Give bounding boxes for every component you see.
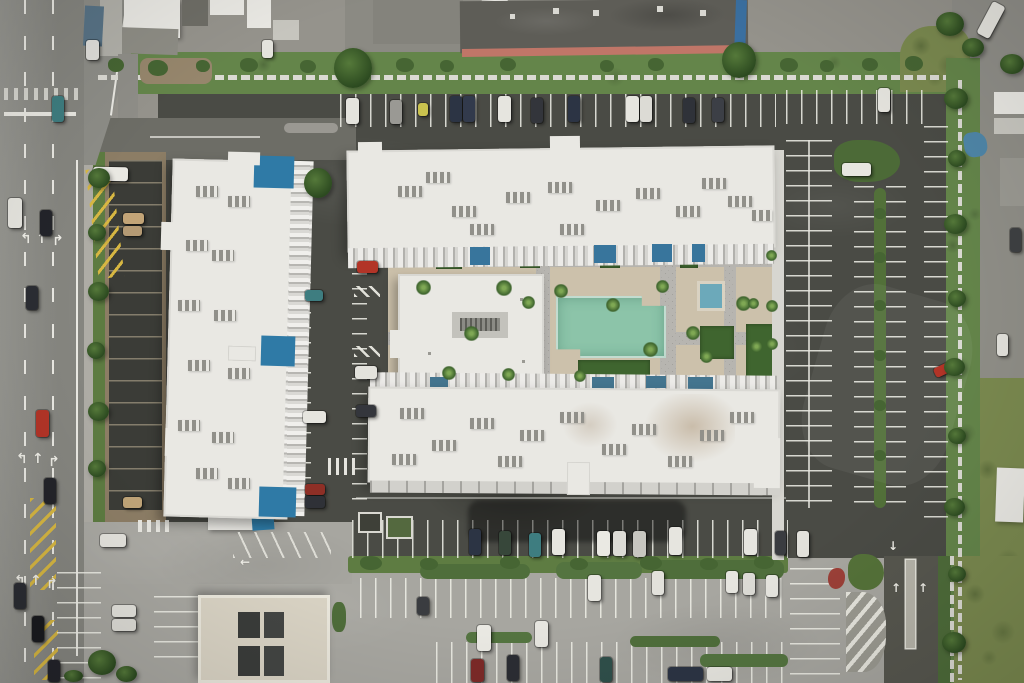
south-building-endcap-east [754, 438, 780, 488]
hatch-inner-2 [354, 346, 380, 357]
bush-top [396, 58, 414, 72]
car-top-row [418, 103, 428, 116]
van-bottom-row [669, 527, 682, 555]
precast-wall-top [98, 75, 946, 80]
car-south-lot [507, 655, 519, 681]
hvac-unit [668, 456, 692, 467]
car-road-red [36, 410, 49, 437]
bush-top [862, 58, 878, 71]
tree-west [87, 342, 105, 359]
hvac-unit [636, 188, 660, 199]
bush-south-strip [360, 556, 382, 570]
van-dark-inner [305, 496, 325, 508]
warehouse-vent [657, 6, 663, 12]
bush-median-right [874, 350, 886, 361]
office-hvac-2 [264, 612, 284, 638]
crosswalk-inner [328, 458, 355, 475]
hvac-unit [228, 478, 250, 489]
stalls-top-row-right [786, 90, 934, 124]
industrial-roof-white-3 [247, 0, 271, 28]
palm-courtyard [416, 280, 431, 295]
tree-west [88, 282, 109, 301]
car-south-lot [600, 657, 612, 682]
car-bottom-row [744, 529, 757, 555]
warehouse-vent [593, 10, 599, 16]
car-road [32, 616, 44, 642]
hvac-unit [426, 172, 450, 183]
car-road [48, 660, 60, 682]
green-patch-bc-6 [700, 654, 788, 667]
tree-west [88, 402, 109, 421]
arrow-entrance: ↑ [891, 582, 901, 594]
palm-courtyard [643, 342, 658, 357]
tree-sw-corner [64, 670, 83, 682]
car-road [40, 210, 52, 236]
west-building-rooftop-bump [228, 346, 256, 362]
arrow-entrance: ↑ [918, 582, 928, 594]
green-patch-bc-5 [630, 636, 720, 647]
hvac-unit [520, 430, 544, 441]
car-tan-west [123, 213, 144, 224]
bush-median-right [874, 252, 886, 263]
hvac-unit [596, 200, 620, 211]
car-road [52, 96, 64, 122]
hvac-unit [730, 412, 754, 423]
hvac-unit [432, 440, 456, 451]
lane-arrow: ↑ [32, 452, 44, 466]
hvac-unit [178, 420, 200, 431]
palm-eastwalk [766, 338, 778, 350]
south-building-tower [567, 462, 590, 495]
hvac-unit [178, 300, 200, 311]
car-south-lot [743, 573, 755, 595]
car-tan-west [123, 497, 142, 508]
lane-arrow: ↱ [48, 455, 60, 469]
bush-south-strip [700, 558, 718, 570]
arrow-sw: ← [240, 556, 250, 568]
tree-right [944, 498, 965, 516]
hvac-unit [228, 196, 250, 207]
hvac-unit [196, 468, 218, 479]
palm-courtyard [606, 298, 620, 312]
warehouse-vent [510, 14, 515, 19]
car-bottom-row [633, 531, 646, 557]
bush-south-strip [420, 558, 438, 570]
hvac-unit [212, 250, 234, 261]
warehouse-vent [553, 8, 559, 14]
car-teal-inner [305, 290, 323, 301]
tree-large-top [334, 48, 372, 88]
palm-courtyard [554, 284, 568, 298]
hvac-unit [548, 182, 572, 193]
car-south-lot [588, 575, 601, 601]
car-bottom-row [469, 529, 481, 555]
building-white-right [995, 468, 1024, 523]
entry-median-top [284, 123, 338, 133]
bush-south-strip [754, 556, 774, 569]
south-facade-blue-3 [646, 376, 666, 388]
car-top-row [498, 96, 511, 122]
palm-eastwalk [748, 298, 759, 309]
bush-top [240, 58, 258, 72]
road-crosswalk-top [4, 88, 78, 100]
warehouse-vent [700, 10, 706, 16]
tree-west [88, 168, 110, 188]
tree-right [942, 632, 966, 653]
car-top-row [878, 88, 890, 112]
hvac-unit [400, 408, 424, 419]
car-red-inner [357, 261, 378, 273]
van-white-sw [100, 534, 126, 547]
bush-south-strip [500, 556, 520, 569]
west-building-roofcap-top [228, 152, 260, 166]
car-dark-inner [356, 405, 376, 417]
bush-median-right [874, 400, 886, 411]
tree-topright [962, 38, 984, 57]
tree-west [88, 460, 106, 477]
bush-top [440, 60, 454, 72]
van-white-sw-stall [112, 605, 136, 617]
hvac-unit [702, 178, 726, 189]
office-hvac-4 [264, 646, 284, 676]
spa [700, 284, 722, 308]
hvac-unit [398, 186, 422, 197]
lane-arrow: ↑ [30, 574, 42, 588]
aerial-photo-apartment-complex: ↰↑↱↰↑↱↰↑↱↑←↑↑↓ [0, 0, 1024, 683]
car-road [14, 583, 26, 609]
hvac-unit [676, 206, 700, 217]
north-building-roof [346, 145, 775, 252]
hvac-unit [498, 456, 522, 467]
van-white-right-lot [842, 163, 871, 176]
hvac-unit [188, 360, 210, 371]
car-bottom-row [797, 531, 809, 557]
bush-median-right [874, 300, 886, 311]
north-facade-blue-3 [652, 244, 672, 262]
industrial-roof-gray-2 [273, 20, 299, 40]
car-top-row [683, 98, 695, 123]
clubhouse-west-bump [390, 330, 400, 358]
west-building-stair-west1 [161, 222, 174, 250]
tree-right [944, 358, 965, 376]
car-south-lot [417, 597, 429, 615]
lane-arrow: ↱ [46, 577, 58, 591]
tree-sw-corner [88, 650, 116, 675]
bush-top [148, 60, 168, 76]
car-bottom-row [552, 529, 565, 555]
car-south-lot [477, 625, 491, 651]
hvac-unit [196, 186, 218, 197]
tree-west [88, 224, 106, 241]
palm-courtyard [522, 296, 535, 309]
spine-right-col1 [808, 140, 810, 508]
building-gray-right [1000, 158, 1024, 206]
north-facade-blue-2 [594, 245, 616, 263]
south-roof-stain-2 [560, 400, 620, 450]
bush-top [500, 58, 516, 71]
bush-south-strip [570, 558, 588, 570]
car-south-lot [652, 571, 664, 595]
palm-courtyard [464, 326, 479, 341]
palm-eastwalk [766, 250, 777, 261]
utility-enclosure-2 [386, 516, 413, 539]
trailer-white-right [994, 92, 1024, 114]
tree-right [944, 88, 968, 109]
entrance-green-blob [848, 554, 884, 590]
car-top-row [626, 96, 639, 122]
palm-eastwalk [766, 300, 778, 312]
north-facade-blue-1 [470, 247, 490, 265]
hvac-unit [560, 224, 584, 235]
car-bottom-row [613, 531, 626, 556]
car-top-row [450, 96, 462, 122]
hvac-unit [392, 454, 416, 465]
south-facade-blue-4 [688, 377, 713, 389]
hvac-unit [228, 368, 250, 379]
office-hvac-3 [238, 646, 260, 676]
clubhouse-vent [428, 352, 431, 355]
cross-street-line [150, 136, 260, 138]
west-building-stair-west2 [165, 428, 178, 456]
palm-courtyard [574, 370, 586, 382]
industrial-roof-white-2 [210, 0, 244, 15]
hvac-unit [700, 430, 724, 441]
car-bottom-row [529, 533, 541, 557]
lane-arrow: ↰ [20, 232, 32, 246]
hvac-unit [214, 310, 236, 321]
bush-top [108, 58, 124, 72]
hvac-unit [452, 206, 476, 217]
bush-top [820, 60, 834, 72]
bush-south-strip [640, 556, 662, 570]
bush-top [648, 58, 664, 71]
stalls-top-row [340, 94, 776, 127]
tree-right [948, 428, 966, 444]
tree-right [948, 150, 966, 167]
van-white-inner [355, 366, 377, 379]
warehouse-roof-gray [373, 0, 463, 44]
car-bottom-row [499, 531, 511, 555]
hvac-unit [212, 432, 234, 443]
entrance-median [906, 560, 915, 648]
car-top-row [568, 96, 580, 122]
west-building-blue-bottom [259, 487, 297, 518]
palm-courtyard [686, 326, 700, 340]
pebble-path-3 [724, 262, 736, 384]
trailer-gray-right [994, 118, 1024, 134]
bush-top [196, 60, 210, 72]
van-dark-right [1010, 228, 1021, 252]
car-bottom-row [597, 531, 610, 556]
hvac-unit [602, 444, 626, 455]
truck-road [8, 198, 22, 228]
entrance-gore [846, 592, 886, 672]
palm-courtyard [502, 368, 515, 381]
bush-top [780, 58, 798, 72]
palm-courtyard [496, 280, 512, 296]
car-tan-west [123, 226, 142, 236]
palm-courtyard [442, 366, 456, 380]
industrial-shed-gray [114, 27, 179, 55]
car-road [44, 478, 56, 504]
van-white-sw-stall [112, 619, 136, 631]
hvac-unit [506, 192, 530, 203]
hvac-unit [186, 240, 208, 251]
bush-top [905, 56, 923, 71]
car-top-row [463, 96, 475, 122]
north-facade-blue-4 [692, 244, 705, 262]
van-white-topleft [262, 40, 273, 58]
hvac-unit [752, 210, 772, 221]
truck-south-lot [668, 667, 703, 681]
clubhouse-vent [522, 360, 525, 363]
palm-courtyard [750, 340, 763, 353]
bush-top [600, 60, 614, 72]
tree-topright [936, 12, 964, 36]
car-white-inner [303, 411, 326, 423]
lane-arrow: ↱ [52, 234, 64, 248]
car-road [26, 286, 38, 310]
west-building-blue-mid [261, 336, 296, 367]
lane-arrow: ↰ [16, 452, 28, 466]
crosswalk-southwest [138, 520, 174, 532]
tree-right [948, 566, 966, 582]
hvac-unit [470, 418, 494, 429]
car-top-row [390, 100, 402, 124]
hvac-unit [560, 412, 584, 423]
grass-band-top [88, 52, 966, 94]
car-top-row [712, 98, 724, 122]
car-top-row [640, 96, 652, 122]
car-bottom-row [775, 531, 786, 555]
hvac-unit [470, 224, 494, 235]
tree-right [948, 290, 966, 307]
car-south-lot [471, 659, 484, 682]
palm-courtyard [656, 280, 669, 293]
road-stop-bar [4, 112, 76, 116]
green-patch-bc-4 [466, 632, 532, 643]
arrow-entrance-exit: ↓ [888, 540, 898, 552]
hvac-unit [728, 196, 752, 207]
entry-canopy-white [208, 517, 254, 530]
car-red-inner-2 [305, 484, 325, 495]
tree-large-top [722, 42, 756, 78]
hvac-unit [632, 424, 656, 435]
bush-median-right [874, 450, 886, 461]
pickup-white-right [997, 334, 1008, 356]
hatch-inner-1 [354, 286, 380, 297]
stalls-sw-col2 [154, 596, 198, 666]
van-south-lot [707, 667, 732, 681]
industrial-roof-dark [182, 0, 208, 26]
office-hvac-1 [238, 612, 260, 638]
tree-sw-corner [116, 666, 137, 682]
car-top-row [531, 98, 543, 123]
car-south-lot [766, 575, 778, 597]
bush-office [332, 602, 346, 632]
north-building-towercap [550, 136, 580, 158]
truck-white-topleft [86, 40, 99, 60]
palm-island-inner [304, 168, 332, 198]
north-building-cap-left [358, 142, 382, 154]
car-top-row [346, 98, 359, 124]
car-south-lot [726, 571, 738, 593]
bush-top [300, 60, 316, 73]
bush-median-right [874, 208, 886, 219]
palm-courtyard [700, 350, 713, 363]
car-south-lot [535, 621, 548, 647]
utility-enclosure-1 [358, 512, 382, 533]
curb-line-south-building [356, 497, 786, 499]
tree-topright [1000, 54, 1024, 74]
tree-right [944, 214, 967, 234]
